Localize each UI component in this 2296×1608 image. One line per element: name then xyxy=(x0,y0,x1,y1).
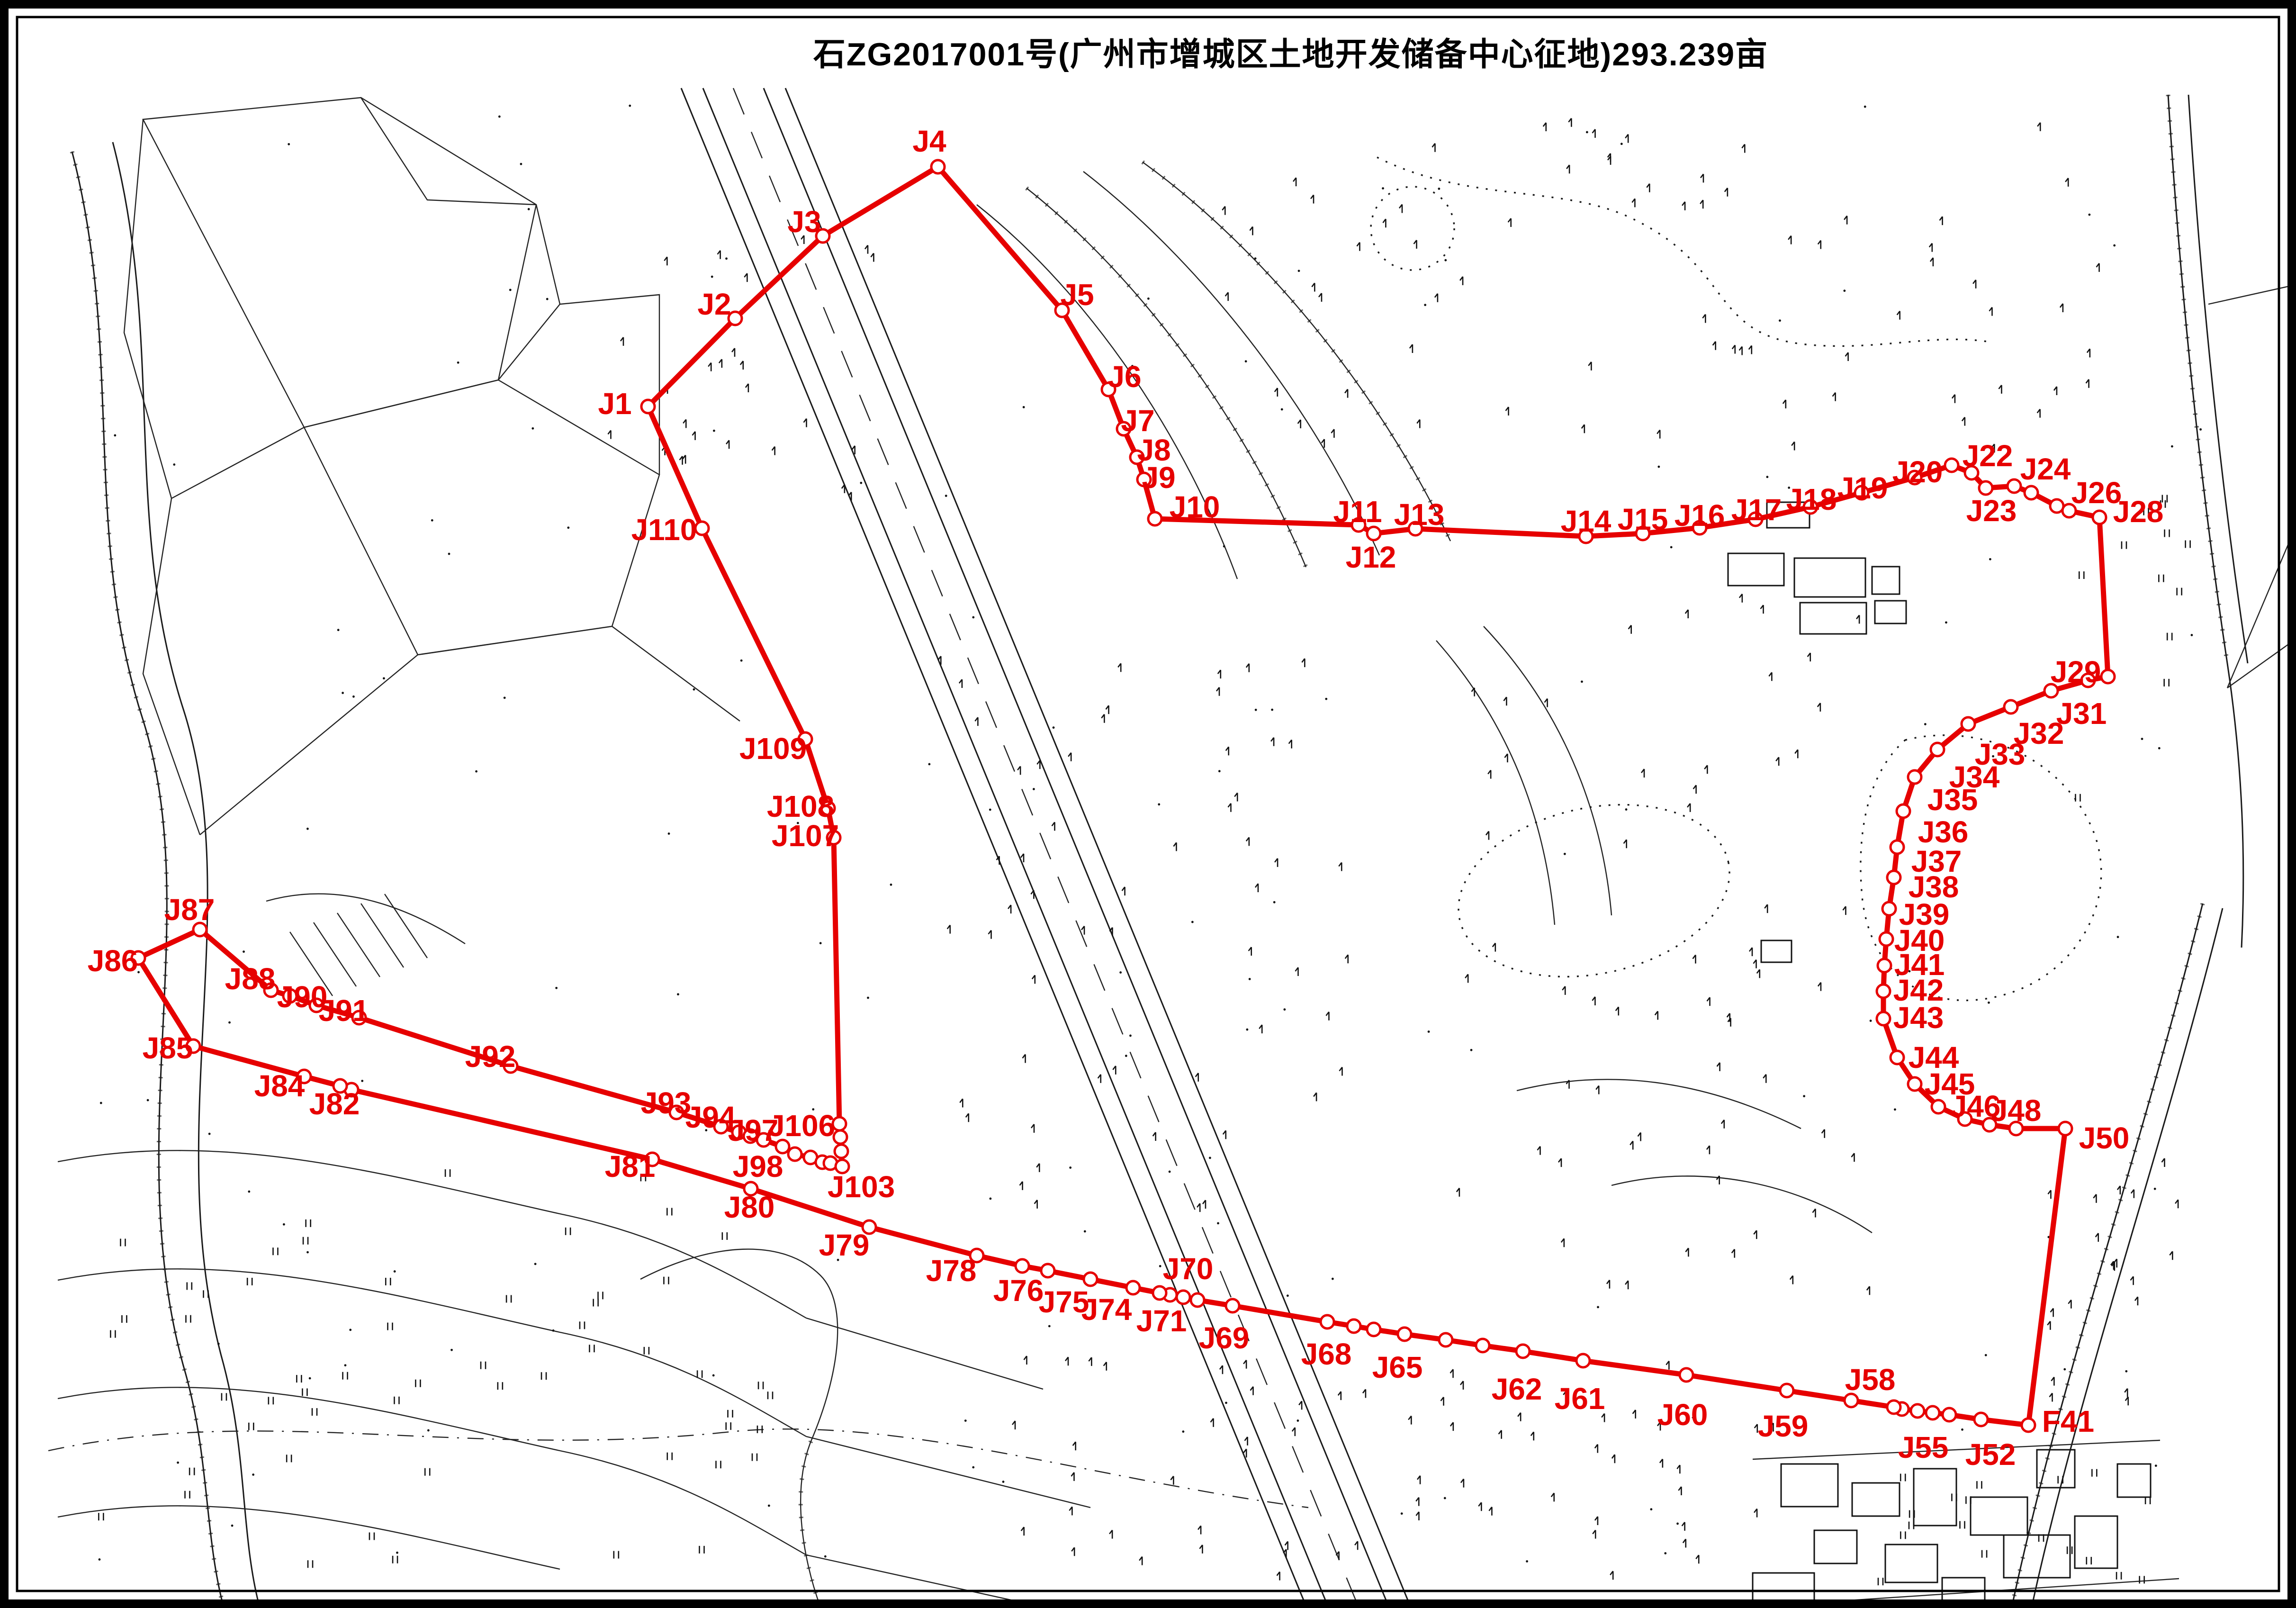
map-dot-symbol xyxy=(2141,738,2143,740)
boundary-vertex xyxy=(1932,1100,1945,1113)
map-dot-symbol xyxy=(1225,1402,1227,1404)
boundary-vertex xyxy=(1877,1012,1890,1025)
boundary-point-label: F41 xyxy=(2042,1404,2094,1438)
boundary-vertex xyxy=(1680,1368,1693,1382)
map-dot-symbol xyxy=(2088,214,2090,216)
map-dot-symbol xyxy=(1424,304,1426,306)
map-dot-symbol xyxy=(383,677,385,679)
boundary-point-label: J17 xyxy=(1731,493,1782,527)
map-dot-symbol xyxy=(1002,1481,1005,1483)
map-dot-symbol xyxy=(1526,1560,1528,1563)
map-dot-symbol xyxy=(457,361,459,364)
boundary-vertex xyxy=(1962,717,1975,731)
map-dot-symbol xyxy=(1273,901,1276,903)
map-dot-symbol xyxy=(1255,709,1257,711)
map-dot-symbol xyxy=(1159,1265,1162,1267)
map-dot-symbol xyxy=(1428,1030,1430,1033)
map-dot-symbol xyxy=(498,116,501,118)
boundary-vertex xyxy=(1780,1384,1793,1397)
map-dot-symbol xyxy=(928,763,931,766)
boundary-point-label: J2 xyxy=(697,287,731,321)
map-dot-symbol xyxy=(431,519,433,522)
boundary-point-label: J75 xyxy=(1039,1285,1089,1319)
map-dot-symbol xyxy=(342,692,344,694)
map-dot-symbol xyxy=(1444,259,1447,262)
map-dot-symbol xyxy=(1625,808,1628,811)
boundary-point-label: J20 xyxy=(1892,455,1943,489)
map-dot-symbol xyxy=(1069,1166,1071,1169)
map-dot-symbol xyxy=(283,1223,285,1226)
map-dot-symbol xyxy=(1281,408,1283,411)
map-dot-symbol xyxy=(520,163,522,165)
boundary-vertex xyxy=(1908,1077,1921,1091)
map-dot-symbol xyxy=(567,526,569,529)
map-dot-symbol xyxy=(1249,978,1251,980)
boundary-vertex xyxy=(1576,1354,1590,1367)
map-dot-symbol xyxy=(1444,1497,1446,1500)
map-dot-symbol xyxy=(546,298,549,300)
map-dot-symbol xyxy=(231,1525,234,1527)
boundary-point-label: J11 xyxy=(1333,495,1382,529)
map-dot-symbol xyxy=(177,1462,179,1464)
boundary-vertex xyxy=(1878,959,1891,972)
map-dot-symbol xyxy=(1048,1325,1051,1328)
map-dot-symbol xyxy=(1182,1430,1184,1433)
boundary-point-label: J76 xyxy=(993,1274,1044,1308)
map-dot-symbol xyxy=(989,1198,991,1200)
boundary-point-label: J65 xyxy=(1372,1350,1423,1384)
map-dot-symbol xyxy=(2171,445,2173,448)
map-dot-symbol xyxy=(252,1473,254,1476)
map-dot-symbol xyxy=(867,997,869,999)
map-dot-symbol xyxy=(668,832,670,835)
boundary-vertex xyxy=(1516,1345,1530,1358)
map-dot-symbol xyxy=(396,1552,398,1554)
map-dot-symbol xyxy=(450,1349,453,1351)
boundary-point-label: J70 xyxy=(1163,1252,1214,1286)
boundary-vertex xyxy=(931,160,945,173)
map-dot-symbol xyxy=(1870,1020,1872,1022)
boundary-point-label: J82 xyxy=(309,1087,360,1121)
boundary-point-label: J4 xyxy=(912,124,946,158)
boundary-vertex xyxy=(1226,1299,1239,1312)
map-dot-symbol xyxy=(228,1021,231,1024)
map-dot-symbol xyxy=(1158,803,1160,805)
boundary-vertex xyxy=(2059,1122,2072,1135)
boundary-point-label: J106 xyxy=(768,1109,835,1143)
map-dot-symbol xyxy=(1586,131,1588,134)
map-dot-symbol xyxy=(677,993,679,995)
map-dot-symbol xyxy=(740,659,743,662)
boundary-point-label: J18 xyxy=(1786,482,1837,516)
map-dot-symbol xyxy=(712,1374,715,1377)
boundary-point-label: J15 xyxy=(1618,502,1668,536)
boundary-point-label: J19 xyxy=(1837,471,1888,505)
map-dot-symbol xyxy=(217,1343,220,1345)
boundary-point-label: J59 xyxy=(1758,1409,1809,1443)
map-dot-symbol xyxy=(1843,289,1846,292)
map-dot-symbol xyxy=(1581,680,1583,683)
boundary-vertex xyxy=(1979,481,1992,495)
boundary-point-label: J55 xyxy=(1898,1430,1949,1464)
map-dot-symbol xyxy=(989,809,991,811)
map-dot-symbol xyxy=(1401,1512,1403,1515)
boundary-vertex xyxy=(1908,770,1921,784)
boundary-vertex xyxy=(1367,527,1380,540)
map-dot-symbol xyxy=(1988,1002,1990,1004)
map-dot-symbol xyxy=(1129,1035,1132,1037)
boundary-vertex xyxy=(1084,1273,1097,1286)
map-dot-symbol xyxy=(1766,476,1768,478)
map-dot-symbol xyxy=(1657,466,1660,468)
map-dot-symbol xyxy=(1053,726,1055,729)
boundary-point-label: J68 xyxy=(1301,1337,1352,1371)
boundary-vertex xyxy=(1398,1328,1411,1341)
map-dot-symbol xyxy=(1297,1419,1299,1422)
boundary-point-label: J23 xyxy=(1966,494,2017,528)
map-dot-symbol xyxy=(1287,1294,1289,1297)
map-dot-symbol xyxy=(337,629,340,631)
map-dot-symbol xyxy=(448,553,450,555)
map-dot-symbol xyxy=(147,1099,149,1102)
boundary-point-label: J81 xyxy=(605,1149,656,1183)
boundary-vertex xyxy=(1974,1413,1988,1426)
boundary-point-label: J84 xyxy=(254,1069,305,1103)
boundary-vertex xyxy=(641,400,655,413)
survey-map-canvas: J1J2J3J4J5J6J7J8J9J10J11J12J13J14J15J16J… xyxy=(0,0,2296,1608)
boundary-vertex xyxy=(2008,479,2021,493)
boundary-vertex xyxy=(1347,1319,1360,1333)
map-dot-symbol xyxy=(2155,1464,2157,1467)
boundary-point-label: J28 xyxy=(2113,495,2164,529)
map-dot-symbol xyxy=(1325,698,1327,700)
map-dot-symbol xyxy=(394,1270,396,1273)
map-dot-symbol xyxy=(1621,143,1623,145)
map-dot-symbol xyxy=(972,1466,974,1469)
boundary-point-label: J87 xyxy=(164,893,215,927)
boundary-vertex xyxy=(1887,1400,1900,1414)
boundary-vertex xyxy=(788,1147,801,1161)
map-dot-symbol xyxy=(306,1251,309,1254)
boundary-vertex xyxy=(1153,1286,1166,1300)
map-dot-symbol xyxy=(427,1429,430,1432)
boundary-point-label: J109 xyxy=(739,732,807,766)
map-dot-symbol xyxy=(860,482,862,484)
boundary-point-label: J78 xyxy=(926,1254,977,1288)
map-dot-symbol xyxy=(1283,1008,1286,1011)
map-dot-symbol xyxy=(306,828,309,830)
map-dot-symbol xyxy=(725,257,728,260)
map-dot-symbol xyxy=(629,105,631,107)
boundary-vertex xyxy=(1945,459,1958,472)
map-dot-symbol xyxy=(824,1555,827,1558)
map-dot-symbol xyxy=(1245,360,1247,362)
map-dot-symbol xyxy=(2117,936,2119,938)
map-dot-symbol xyxy=(1924,723,1927,725)
boundary-vertex xyxy=(1321,1315,1334,1328)
map-dot-symbol xyxy=(1119,971,1122,974)
map-dot-symbol xyxy=(1246,1029,1248,1031)
map-dot-symbol xyxy=(288,143,290,145)
map-dot-symbol xyxy=(1191,921,1194,923)
map-dot-symbol xyxy=(713,430,715,432)
map-dot-symbol xyxy=(1332,1278,1334,1280)
map-dot-symbol xyxy=(1864,106,1866,108)
boundary-point-label: J35 xyxy=(1927,783,1978,817)
boundary-point-label: J50 xyxy=(2079,1121,2130,1155)
map-dot-symbol xyxy=(693,688,695,691)
boundary-point-label: J110 xyxy=(631,513,697,547)
map-dot-symbol xyxy=(2158,747,2161,750)
map-dot-symbol xyxy=(1084,1230,1086,1233)
map-dot-symbol xyxy=(99,1558,101,1561)
map-dot-symbol xyxy=(1564,853,1566,855)
map-dot-symbol xyxy=(819,942,822,944)
boundary-point-label: J16 xyxy=(1675,498,1725,533)
map-dot-symbol xyxy=(711,276,713,278)
map-dot-symbol xyxy=(1271,709,1273,711)
boundary-point-label: J5 xyxy=(1060,278,1094,312)
boundary-vertex xyxy=(1926,1406,1939,1419)
map-dot-symbol xyxy=(361,1080,363,1082)
map-dot-symbol xyxy=(768,1505,770,1507)
map-dot-symbol xyxy=(1676,1523,1679,1525)
map-dot-symbol xyxy=(475,770,477,773)
boundary-point-label: J93 xyxy=(641,1086,692,1120)
map-dot-symbol xyxy=(2154,1188,2156,1190)
boundary-point-label: J88 xyxy=(225,962,276,996)
map-dot-symbol xyxy=(1945,621,1947,623)
map-dot-symbol xyxy=(555,987,558,989)
boundary-vertex xyxy=(834,1130,847,1144)
map-dot-symbol xyxy=(1985,1354,1987,1356)
boundary-point-label: J86 xyxy=(88,944,138,978)
map-dot-symbol xyxy=(1223,545,1225,548)
map-dot-symbol xyxy=(1023,406,1025,408)
map-dot-symbol xyxy=(1894,1108,1896,1111)
map-dot-symbol xyxy=(248,1191,250,1193)
map-dot-symbol xyxy=(2191,634,2193,636)
boundary-vertex xyxy=(1191,1293,1204,1307)
boundary-point-label: J60 xyxy=(1657,1398,1708,1432)
boundary-point-label: J80 xyxy=(724,1190,775,1224)
boundary-point-label: J61 xyxy=(1555,1382,1605,1416)
map-dot-symbol xyxy=(504,696,506,699)
map-dot-symbol xyxy=(1169,1171,1171,1173)
map-dot-symbol xyxy=(1597,1306,1599,1309)
map-dot-symbol xyxy=(309,1377,311,1380)
boundary-point-label: J52 xyxy=(1965,1437,2016,1472)
boundary-point-label: J1 xyxy=(598,387,631,421)
boundary-vertex xyxy=(2101,670,2115,683)
map-dot-symbol xyxy=(1218,770,1221,772)
boundary-vertex xyxy=(1177,1291,1190,1304)
map-dot-symbol xyxy=(552,1329,555,1332)
map-dot-symbol xyxy=(344,1364,347,1366)
boundary-vertex xyxy=(1877,985,1890,998)
map-dot-symbol xyxy=(964,1419,967,1422)
boundary-vertex xyxy=(1439,1333,1452,1346)
boundary-vertex xyxy=(1931,743,1944,756)
map-dot-symbol xyxy=(1670,546,1673,549)
boundary-point-label: J43 xyxy=(1893,1001,1944,1035)
map-dot-symbol xyxy=(1803,1095,1805,1097)
boundary-vertex xyxy=(1880,932,1893,946)
boundary-vertex xyxy=(2004,700,2017,714)
boundary-point-label: J71 xyxy=(1136,1304,1187,1338)
boundary-vertex xyxy=(835,1145,848,1158)
boundary-vertex xyxy=(695,522,709,535)
boundary-point-label: J79 xyxy=(819,1228,870,1262)
map-title: 石ZG2017001号(广州市增城区土地开发储备中心征地)293.239亩 xyxy=(813,36,1768,72)
boundary-point-label: J103 xyxy=(828,1170,895,1204)
map-dot-symbol xyxy=(2125,1370,2127,1373)
map-dot-symbol xyxy=(2113,244,2116,247)
page-root: J1J2J3J4J5J6J7J8J9J10J11J12J13J14J15J16J… xyxy=(0,0,2296,1608)
boundary-vertex xyxy=(1887,871,1900,884)
boundary-vertex xyxy=(1882,902,1896,915)
boundary-vertex xyxy=(1148,512,1162,525)
map-dot-symbol xyxy=(1217,1222,1219,1225)
map-dot-symbol xyxy=(531,427,534,430)
map-dot-symbol xyxy=(349,1328,351,1331)
boundary-point-label: J62 xyxy=(1492,1372,1542,1406)
map-dot-symbol xyxy=(173,463,175,466)
boundary-point-label: J6 xyxy=(1107,360,1141,394)
boundary-point-label: J14 xyxy=(1561,504,1612,538)
boundary-point-label: J10 xyxy=(1170,490,1220,524)
boundary-point-label: J85 xyxy=(143,1031,193,1065)
boundary-vertex xyxy=(1476,1339,1489,1352)
map-dot-symbol xyxy=(1989,558,1991,560)
map-dot-symbol xyxy=(528,208,530,210)
boundary-vertex xyxy=(1891,840,1904,854)
map-dot-symbol xyxy=(1664,1552,1666,1554)
map-dot-symbol xyxy=(534,1263,537,1265)
map-dot-symbol xyxy=(972,616,974,619)
boundary-vertex xyxy=(1891,1051,1904,1064)
map-dot-symbol xyxy=(1125,1055,1127,1057)
map-dot-symbol xyxy=(1961,1428,1963,1431)
boundary-vertex xyxy=(2093,511,2106,524)
boundary-vertex xyxy=(2025,486,2038,499)
boundary-point-label: J13 xyxy=(1394,497,1445,532)
map-dot-symbol xyxy=(1298,270,1300,272)
map-dot-symbol xyxy=(1254,257,1257,260)
boundary-vertex xyxy=(1911,1404,1924,1418)
map-dot-symbol xyxy=(1438,188,1440,190)
map-dot-symbol xyxy=(100,1102,102,1104)
boundary-point-label: J69 xyxy=(1199,1321,1250,1355)
boundary-point-label: J98 xyxy=(733,1149,783,1183)
boundary-vertex xyxy=(1367,1323,1380,1336)
boundary-vertex xyxy=(1897,804,1910,818)
map-dot-symbol xyxy=(509,289,512,291)
boundary-point-label: J108 xyxy=(767,789,834,823)
boundary-point-label: J92 xyxy=(465,1039,516,1074)
map-dot-symbol xyxy=(243,950,245,953)
boundary-point-label: J3 xyxy=(787,205,821,239)
map-dot-symbol xyxy=(1147,298,1150,300)
boundary-point-label: J29 xyxy=(2051,655,2101,689)
boundary-vertex xyxy=(2022,1418,2035,1432)
map-dot-symbol xyxy=(1382,187,1384,190)
map-dot-symbol xyxy=(2199,428,2202,431)
boundary-vertex xyxy=(1943,1408,1956,1421)
map-dot-symbol xyxy=(1779,319,1781,322)
map-dot-symbol xyxy=(1033,788,1035,790)
boundary-point-label: J58 xyxy=(1845,1363,1896,1397)
map-dot-symbol xyxy=(2063,1368,2066,1371)
map-dot-symbol xyxy=(945,495,947,497)
boundary-point-label: J91 xyxy=(319,994,369,1028)
boundary-point-label: J12 xyxy=(1346,540,1396,574)
boundary-point-label: J107 xyxy=(772,819,839,853)
map-dot-symbol xyxy=(1650,1508,1652,1510)
boundary-point-label: J22 xyxy=(1963,439,2013,473)
map-dot-symbol xyxy=(352,696,355,698)
map-dot-symbol xyxy=(890,884,892,886)
map-dot-symbol xyxy=(1470,1049,1473,1051)
boundary-point-label: J24 xyxy=(2020,452,2071,486)
boundary-point-label: J48 xyxy=(1991,1093,2042,1128)
boundary-vertex xyxy=(1016,1259,1029,1273)
map-dot-symbol xyxy=(114,434,116,437)
map-dot-symbol xyxy=(208,1133,211,1135)
map-dot-symbol xyxy=(1209,1157,1211,1159)
